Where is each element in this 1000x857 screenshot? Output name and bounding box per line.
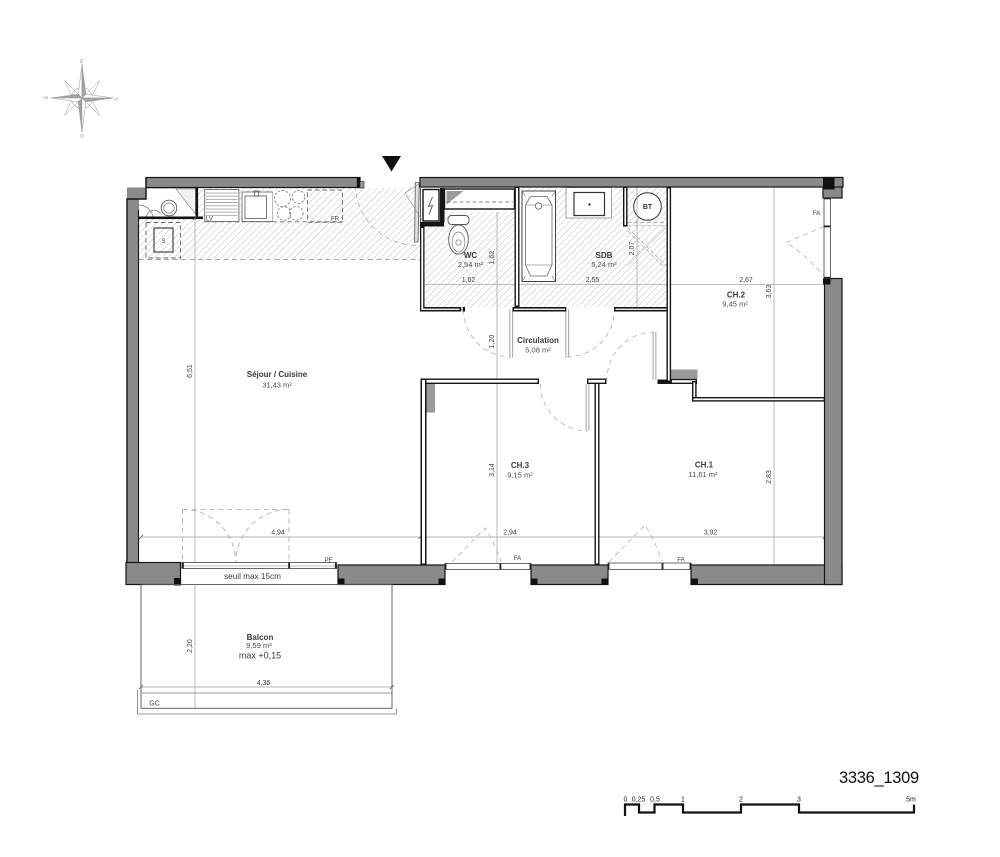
svg-text:E: E [43, 96, 49, 99]
svg-text:5,24 m²: 5,24 m² [591, 260, 617, 269]
svg-text:1,62: 1,62 [489, 251, 496, 265]
svg-text:11,61 m²: 11,61 m² [688, 470, 718, 479]
svg-text:FA: FA [813, 211, 820, 217]
svg-text:5m: 5m [906, 797, 916, 804]
svg-text:seuil max 15cm: seuil max 15cm [224, 572, 281, 581]
svg-text:PF: PF [325, 558, 333, 564]
svg-text:2,67: 2,67 [739, 277, 753, 284]
svg-text:O: O [80, 134, 84, 140]
svg-text:S: S [113, 97, 119, 100]
svg-text:BT: BT [643, 204, 653, 211]
svg-text:0: 0 [624, 797, 628, 804]
svg-text:2,83: 2,83 [766, 470, 773, 484]
svg-text:Séjour / Cuisine: Séjour / Cuisine [247, 370, 308, 379]
svg-text:CH.1: CH.1 [695, 461, 714, 470]
svg-text:FA: FA [514, 556, 521, 562]
svg-text:1,20: 1,20 [489, 335, 496, 349]
svg-text:SDB: SDB [596, 251, 613, 260]
svg-text:3336_1309: 3336_1309 [839, 769, 919, 787]
svg-text:2,20: 2,20 [187, 639, 194, 653]
svg-text:1,62: 1,62 [462, 277, 476, 284]
svg-text:FA: FA [677, 558, 684, 564]
svg-text:2,54 m²: 2,54 m² [458, 260, 484, 269]
svg-text:LV: LV [206, 217, 213, 223]
svg-text:3,92: 3,92 [704, 530, 718, 537]
svg-text:CH.3: CH.3 [511, 461, 530, 470]
svg-text:3: 3 [797, 797, 801, 804]
svg-text:4,94: 4,94 [271, 530, 285, 537]
svg-text:2,07: 2,07 [629, 242, 636, 256]
svg-text:3,14: 3,14 [489, 463, 496, 477]
svg-text:WC: WC [464, 251, 478, 260]
svg-text:N: N [78, 59, 84, 63]
svg-text:CH.2: CH.2 [727, 291, 746, 300]
svg-text:31,43 m²: 31,43 m² [262, 381, 292, 390]
svg-text:FR: FR [331, 217, 340, 223]
svg-text:S: S [161, 239, 165, 245]
svg-text:2: 2 [739, 797, 743, 804]
svg-text:GC: GC [149, 701, 160, 708]
svg-text:9,15 m²: 9,15 m² [507, 471, 533, 480]
svg-text:2,94: 2,94 [503, 530, 517, 537]
svg-text:4,36: 4,36 [257, 680, 271, 687]
svg-text:9,59 m²: 9,59 m² [246, 641, 272, 650]
svg-text:6,51: 6,51 [187, 364, 194, 378]
svg-text:2,55: 2,55 [586, 277, 600, 284]
svg-text:0,5: 0,5 [650, 797, 660, 804]
svg-text:3,63: 3,63 [766, 285, 773, 299]
svg-text:9,45 m²: 9,45 m² [722, 300, 748, 309]
svg-text:1: 1 [681, 797, 685, 804]
svg-text:5,08 m²: 5,08 m² [525, 346, 551, 355]
svg-text:0,25: 0,25 [632, 797, 646, 804]
svg-text:Circulation: Circulation [517, 336, 559, 345]
svg-text:max +0,15: max +0,15 [239, 651, 281, 661]
